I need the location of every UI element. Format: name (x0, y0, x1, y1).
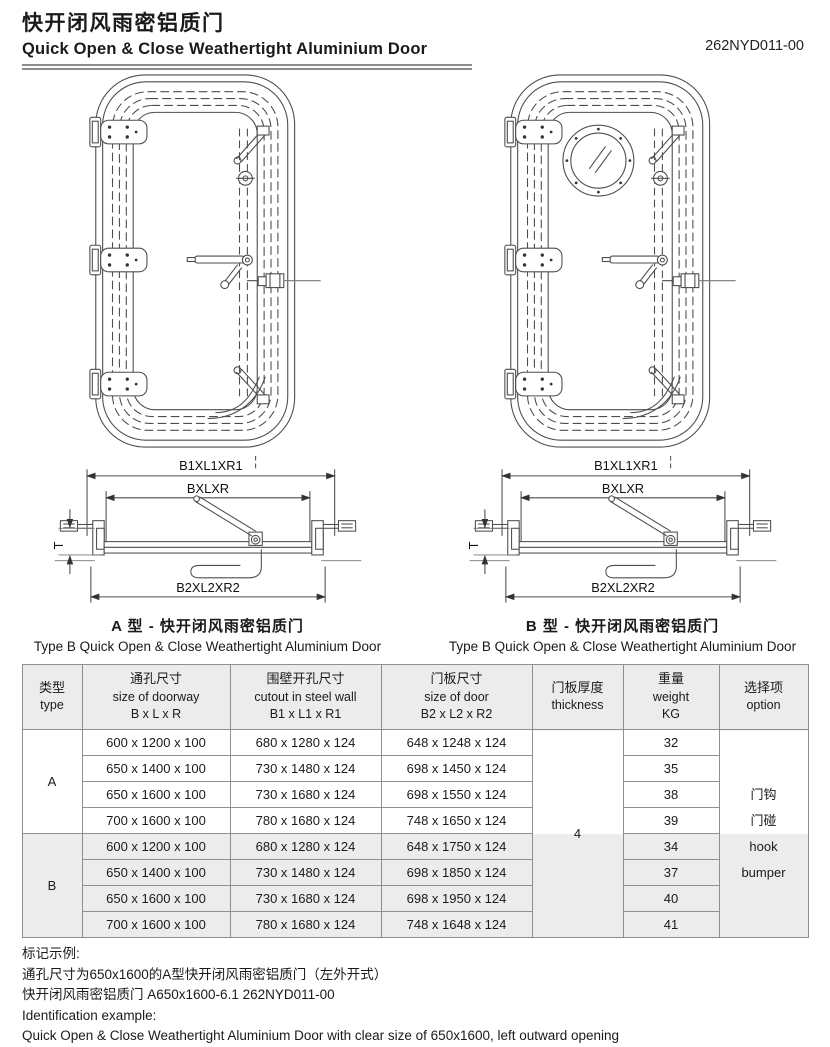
example-line2-chinese: 快开闭风雨密铝质门 A650x1600-6.1 262NYD011-00 (22, 985, 808, 1006)
cell-cutout: 780 x 1680 x 124 (230, 808, 381, 834)
type-b-column: B1XL1XR1 BXLXR B2XL2XR2 T B 型 - 快开闭风雨密铝质… (415, 72, 830, 654)
cell-doorway: 650 x 1600 x 100 (82, 782, 230, 808)
dim-label-thickness: T (51, 541, 66, 549)
cell-door-size: 698 x 1550 x 124 (381, 782, 532, 808)
table-row: A 600 x 1200 x 100 680 x 1280 x 124 648 … (22, 730, 808, 756)
identification-example: 标记示例: 通孔尺寸为650x1600的A型快开闭风雨密铝质门（左外开式） 快开… (22, 944, 808, 1047)
door-front-view-type-b-drawing (503, 72, 743, 452)
table-header-row: 类型 type 通孔尺寸 size of doorway B x L x R 围… (22, 665, 808, 730)
door-cross-section-type-b-drawing: B1XL1XR1 BXLXR B2XL2XR2 T (458, 454, 788, 614)
cell-doorway: 600 x 1200 x 100 (82, 834, 230, 860)
example-label-chinese: 标记示例: (22, 944, 808, 965)
cell-door-size: 648 x 1248 x 124 (381, 730, 532, 756)
table-row: 650 x 1400 x 100 730 x 1480 x 124 698 x … (22, 756, 808, 782)
table-row: 700 x 1600 x 100 780 x 1680 x 124 748 x … (22, 808, 808, 834)
cell-door-size: 698 x 1450 x 124 (381, 756, 532, 782)
drawings-section: B1XL1XR1 BXLXR B2XL2XR2 T A 型 - 快开闭风雨密铝质… (0, 72, 830, 654)
document-number: 262NYD011-00 (705, 38, 804, 54)
cell-weight: 38 (623, 782, 719, 808)
type-a-caption-english: Type B Quick Open & Close Weathertight A… (34, 639, 381, 654)
cell-cutout: 680 x 1280 x 124 (230, 730, 381, 756)
cell-cutout: 730 x 1680 x 124 (230, 886, 381, 912)
datasheet-page: 快开闭风雨密铝质门 Quick Open & Close Weathertigh… (0, 0, 830, 1047)
page-title-chinese: 快开闭风雨密铝质门 (22, 7, 808, 37)
cell-weight: 40 (623, 886, 719, 912)
option-hook-en: hook (720, 834, 808, 860)
cell-cutout: 730 x 1480 x 124 (230, 860, 381, 886)
type-a-caption-chinese: A 型 - 快开闭风雨密铝质门 (111, 615, 304, 636)
header: 快开闭风雨密铝质门 Quick Open & Close Weathertigh… (0, 0, 830, 70)
door-cross-section-type-a-drawing: B1XL1XR1 BXLXR B2XL2XR2 T (43, 454, 373, 614)
cell-cutout: 730 x 1680 x 124 (230, 782, 381, 808)
dim-label-b2l2r2: B2XL2XR2 (176, 580, 240, 595)
column-header-doorway: 通孔尺寸 size of doorway B x L x R (82, 665, 230, 730)
column-header-door-size: 门板尺寸 size of door B2 x L2 x R2 (381, 665, 532, 730)
hinge-middle (504, 245, 561, 275)
cell-weight: 39 (623, 808, 719, 834)
option-cell: 门钩 门碰 hook bumper (719, 730, 808, 938)
dim-label-blr: BXLXR (186, 481, 228, 496)
column-header-weight: 重量 weight KG (623, 665, 719, 730)
example-line1-english: Quick Open & Close Weathertight Aluminiu… (22, 1026, 808, 1047)
hinge-top (504, 117, 561, 147)
thickness-value-cell: 4 (532, 730, 623, 938)
cell-doorway: 600 x 1200 x 100 (82, 730, 230, 756)
page-title-english: Quick Open & Close Weathertight Aluminiu… (22, 40, 808, 59)
table-row: 650 x 1600 x 100 730 x 1680 x 124 698 x … (22, 782, 808, 808)
hinge-bottom (504, 369, 561, 399)
cell-doorway: 650 x 1400 x 100 (82, 860, 230, 886)
table-row: B 600 x 1200 x 100 680 x 1280 x 124 648 … (22, 834, 808, 860)
porthole-window (562, 125, 633, 196)
cell-door-size: 648 x 1750 x 124 (381, 834, 532, 860)
dim-label-thickness: T (466, 541, 481, 549)
example-line1-chinese: 通孔尺寸为650x1600的A型快开闭风雨密铝质门（左外开式） (22, 965, 808, 986)
hinge-bottom (89, 369, 146, 399)
cell-cutout: 680 x 1280 x 124 (230, 834, 381, 860)
option-bumper-zh: 门碰 (720, 808, 808, 834)
dim-label-blr: BXLXR (601, 481, 643, 496)
specification-table: 类型 type 通孔尺寸 size of doorway B x L x R 围… (22, 664, 809, 938)
column-header-type: 类型 type (22, 665, 82, 730)
example-label-english: Identification example: (22, 1006, 808, 1027)
type-b-cell: B (22, 834, 82, 938)
cell-doorway: 650 x 1400 x 100 (82, 756, 230, 782)
cell-cutout: 780 x 1680 x 124 (230, 912, 381, 938)
column-header-cutout: 围壁开孔尺寸 cutout in steel wall B1 x L1 x R1 (230, 665, 381, 730)
column-header-option: 选择项 option (719, 665, 808, 730)
table-row: 650 x 1600 x 100 730 x 1680 x 124 698 x … (22, 886, 808, 912)
dim-label-b1l1r1: B1XL1XR1 (179, 458, 243, 473)
type-a-cell: A (22, 730, 82, 834)
column-header-thickness: 门板厚度 thickness (532, 665, 623, 730)
dim-label-b2l2r2: B2XL2XR2 (591, 580, 655, 595)
title-divider (22, 64, 472, 70)
cell-weight: 37 (623, 860, 719, 886)
table-row: 700 x 1600 x 100 780 x 1680 x 124 748 x … (22, 912, 808, 938)
cell-doorway: 700 x 1600 x 100 (82, 912, 230, 938)
type-b-caption-chinese: B 型 - 快开闭风雨密铝质门 (526, 615, 719, 636)
cell-weight: 35 (623, 756, 719, 782)
table-row: 650 x 1400 x 100 730 x 1480 x 124 698 x … (22, 860, 808, 886)
option-bumper-en: bumper (720, 860, 808, 886)
door-front-view-type-a-drawing (88, 72, 328, 452)
cell-weight: 32 (623, 730, 719, 756)
hinge-middle (89, 245, 146, 275)
cell-door-size: 748 x 1650 x 124 (381, 808, 532, 834)
type-a-column: B1XL1XR1 BXLXR B2XL2XR2 T A 型 - 快开闭风雨密铝质… (0, 72, 415, 654)
cell-cutout: 730 x 1480 x 124 (230, 756, 381, 782)
cell-door-size: 748 x 1648 x 124 (381, 912, 532, 938)
cell-door-size: 698 x 1850 x 124 (381, 860, 532, 886)
cell-weight: 34 (623, 834, 719, 860)
dim-label-b1l1r1: B1XL1XR1 (594, 458, 658, 473)
cell-doorway: 650 x 1600 x 100 (82, 886, 230, 912)
cell-doorway: 700 x 1600 x 100 (82, 808, 230, 834)
option-hook-zh: 门钩 (720, 782, 808, 808)
hinge-top (89, 117, 146, 147)
cell-door-size: 698 x 1950 x 124 (381, 886, 532, 912)
type-b-caption-english: Type B Quick Open & Close Weathertight A… (449, 639, 796, 654)
cell-weight: 41 (623, 912, 719, 938)
